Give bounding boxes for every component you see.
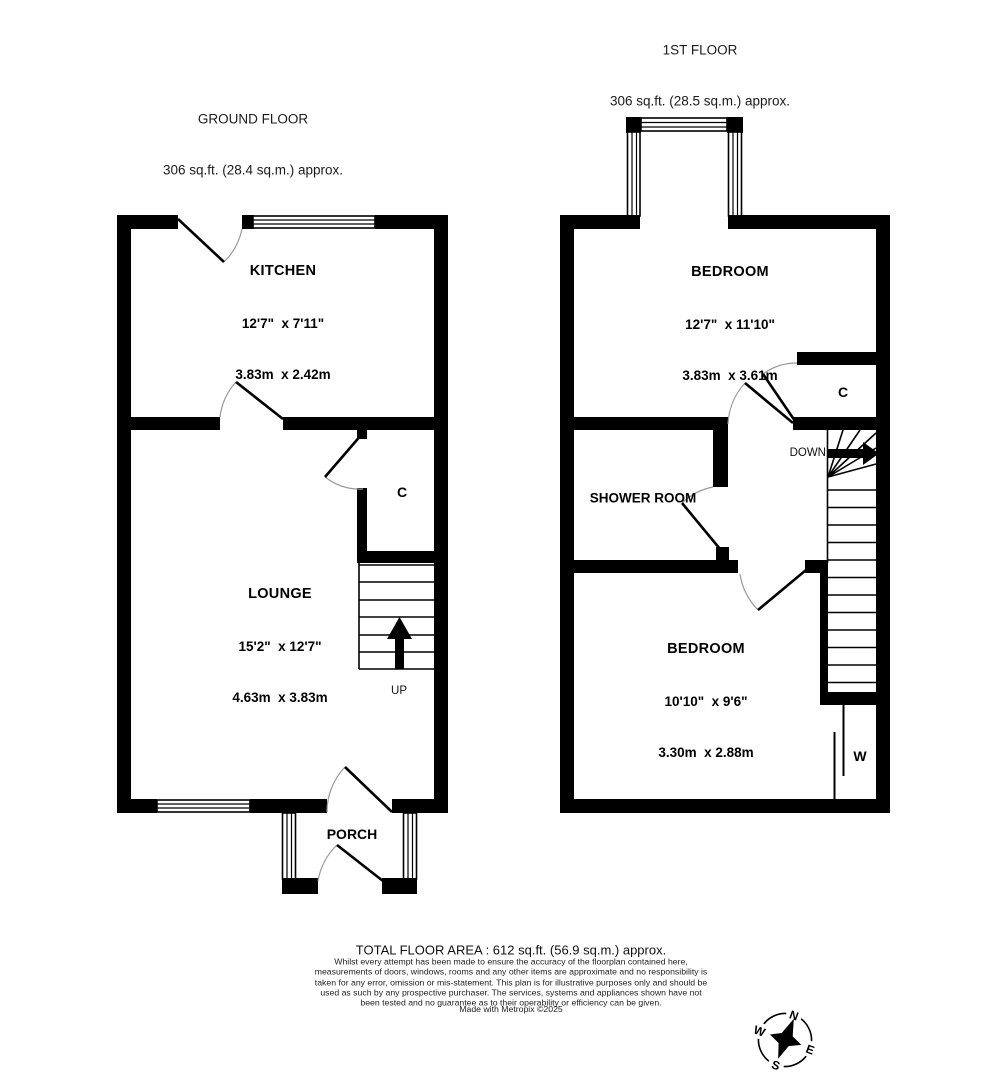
kitchen-window (253, 216, 375, 228)
gf-cupboard-label: C (397, 484, 407, 500)
bedroom2-name: BEDROOM (658, 642, 753, 658)
bedroom1-dim-imperial: 12'7" x 11'10" (682, 316, 777, 332)
credit-text: Made with Metropix ©2025 (459, 1004, 562, 1014)
bedroom1-label: BEDROOM 12'7" x 11'10" 3.83m x 3.61m (682, 229, 777, 420)
lounge-window (157, 800, 250, 812)
ground-floor-title: GROUND FLOOR (163, 113, 343, 128)
kitchen-entry-door (178, 219, 242, 262)
wardrobe (835, 704, 844, 803)
total-floor-area: TOTAL FLOOR AREA : 612 sq.ft. (56.9 sq.m… (356, 943, 666, 958)
down-label: DOWN (790, 447, 826, 459)
wardrobe-label: W (853, 748, 866, 764)
kitchen-label: KITCHEN 12'7" x 7'11" 3.83m x 2.42m (235, 228, 330, 419)
bedroom1-name: BEDROOM (682, 265, 777, 281)
compass-icon: N E S W (741, 996, 829, 1080)
porch-door (318, 845, 383, 881)
bedroom2-label: BEDROOM 10'10" x 9'6" 3.30m x 2.88m (658, 606, 753, 797)
up-label: UP (391, 685, 407, 697)
kitchen-name: KITCHEN (235, 264, 330, 280)
porch-label: PORCH (327, 826, 378, 842)
floorplan-page: N E S W GROUND FLOOR 306 sq.ft. (28.4 sq… (0, 0, 1006, 1080)
shower-room-label: SHOWER ROOM (590, 491, 697, 506)
lounge-dim-imperial: 15'2" x 12'7" (232, 638, 327, 654)
disclaimer-text: Whilst every attempt has been made to en… (312, 956, 710, 1007)
lounge-dim-metric: 4.63m x 3.83m (232, 690, 327, 706)
porch-window-right (404, 813, 417, 879)
bedroom2-dim-metric: 3.30m x 2.88m (658, 745, 753, 761)
bedroom1-dim-metric: 3.83m x 3.61m (682, 368, 777, 384)
compass-west-label: W (752, 1023, 768, 1040)
porch-window-left (283, 813, 296, 879)
ff-staircase (828, 430, 877, 683)
ground-floor-header: GROUND FLOOR 306 sq.ft. (28.4 sq.m.) app… (163, 77, 343, 214)
first-floor-header: 1ST FLOOR 306 sq.ft. (28.5 sq.m.) approx… (610, 8, 790, 145)
ground-floor-area: 306 sq.ft. (28.4 sq.m.) approx. (163, 163, 343, 178)
front-door (327, 767, 392, 812)
kitchen-dim-imperial: 12'7" x 7'11" (235, 315, 330, 331)
kitchen-dim-metric: 3.83m x 2.42m (235, 367, 330, 383)
first-floor-title: 1ST FLOOR (610, 44, 790, 59)
gf-cupboard-door (325, 434, 363, 489)
up-arrow (387, 617, 412, 669)
bedroom2-door (740, 570, 806, 610)
bedroom2-dim-imperial: 10'10" x 9'6" (658, 693, 753, 709)
first-floor-area: 306 sq.ft. (28.5 sq.m.) approx. (610, 94, 790, 109)
lounge-label: LOUNGE 15'2" x 12'7" 4.63m x 3.83m (232, 551, 327, 742)
lounge-name: LOUNGE (232, 587, 327, 603)
floorplan-drawing: N E S W (0, 0, 1006, 1080)
ff-cupboard-label: C (838, 384, 848, 400)
